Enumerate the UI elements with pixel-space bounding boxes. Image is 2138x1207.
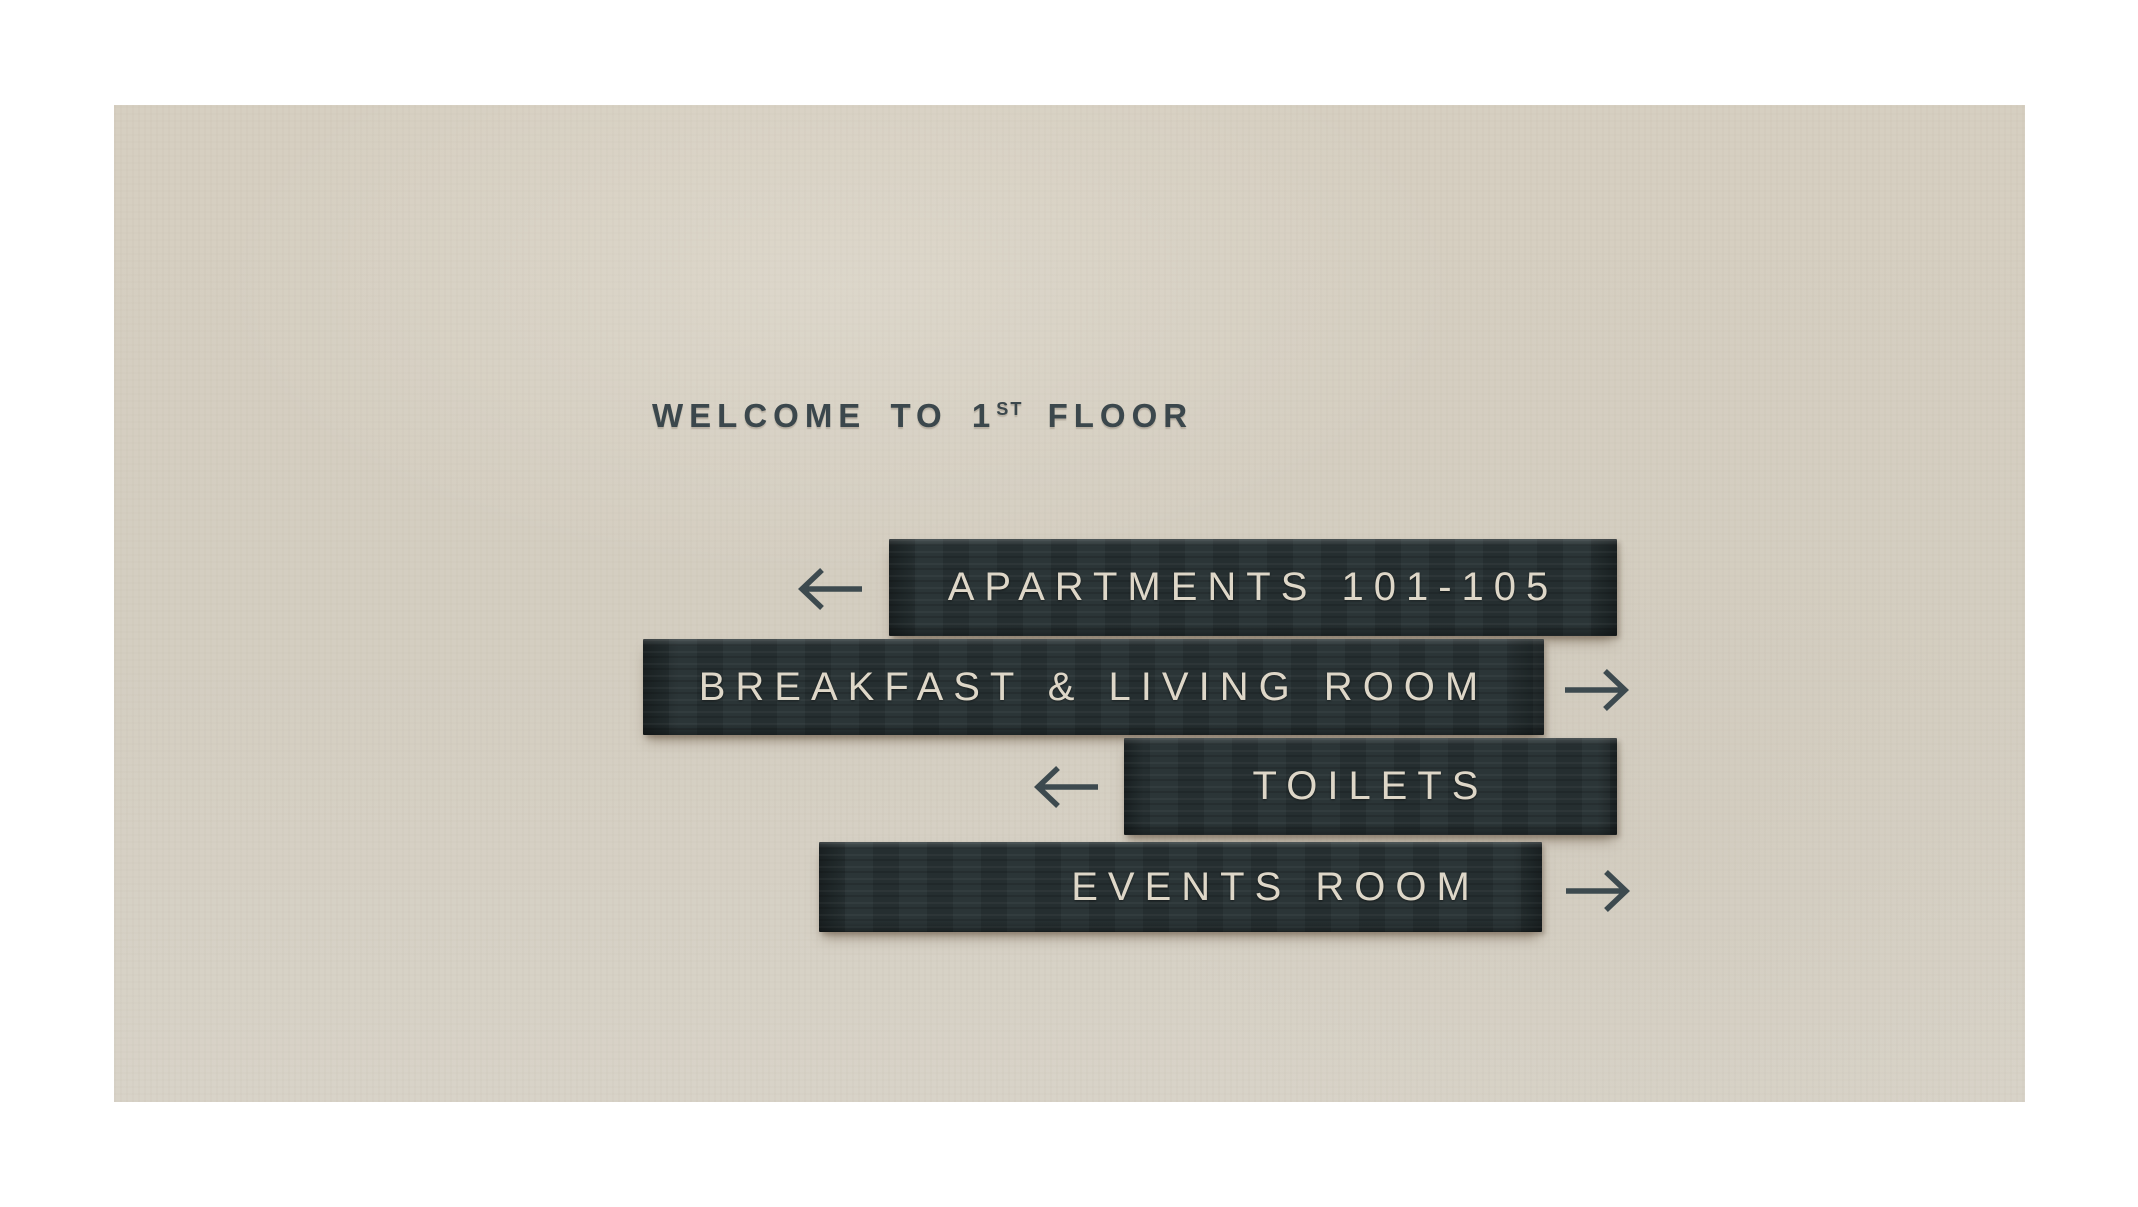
arrow-right-icon xyxy=(1562,867,1632,915)
signage-wall-photo: WELCOME TO 1ST FLOOR APARTMENTS 101-105 xyxy=(114,105,2025,1102)
title-prefix: WELCOME TO 1 xyxy=(652,397,996,434)
sign-bar-toilets: TOILETS xyxy=(1124,738,1617,835)
arrow-right-icon xyxy=(1561,666,1631,714)
screenshot-canvas: WELCOME TO 1ST FLOOR APARTMENTS 101-105 xyxy=(0,0,2138,1207)
sign-bar-apartments: APARTMENTS 101-105 xyxy=(889,539,1617,636)
sign-label-events-room: EVENTS ROOM xyxy=(1071,865,1480,910)
sign-label-breakfast-living-room: BREAKFAST & LIVING ROOM xyxy=(699,665,1489,710)
sign-label-apartments: APARTMENTS 101-105 xyxy=(948,565,1559,610)
sign-bar-events-room: EVENTS ROOM xyxy=(819,842,1542,932)
title-suffix: FLOOR xyxy=(1023,397,1193,434)
sign-label-toilets: TOILETS xyxy=(1253,764,1489,809)
arrow-left-icon xyxy=(796,565,866,613)
floor-welcome-title: WELCOME TO 1ST FLOOR xyxy=(652,397,1193,435)
arrow-left-icon xyxy=(1032,763,1102,811)
sign-bar-breakfast-living-room: BREAKFAST & LIVING ROOM xyxy=(643,639,1544,735)
title-ordinal-superscript: ST xyxy=(996,399,1023,419)
